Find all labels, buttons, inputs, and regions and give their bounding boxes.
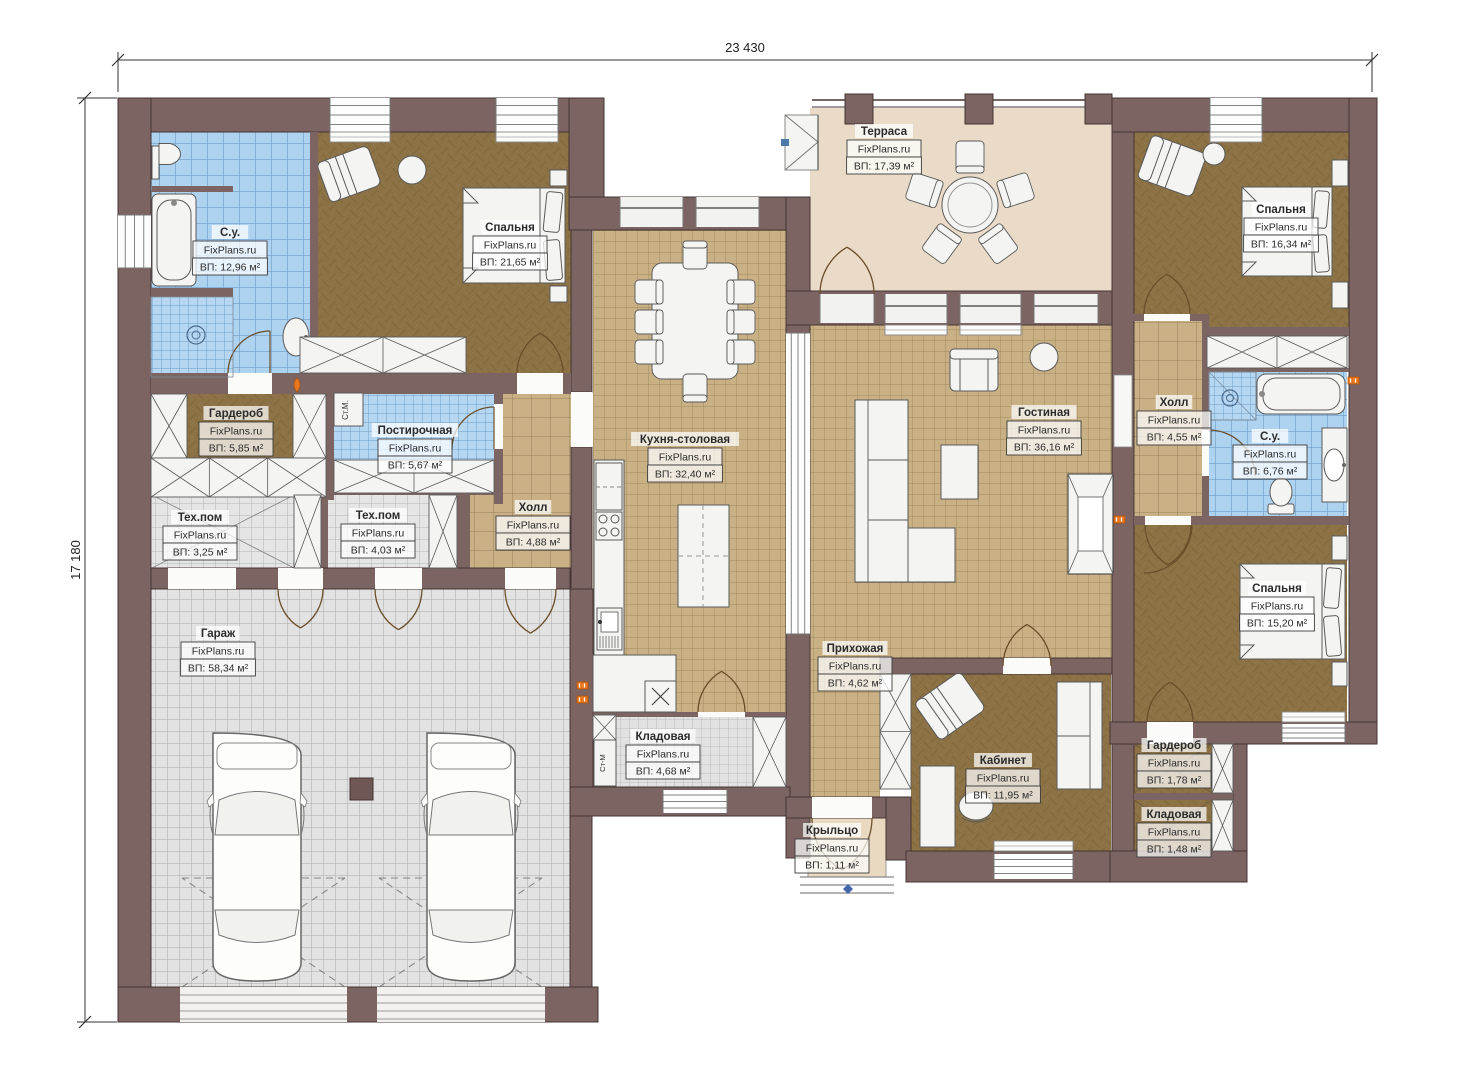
svg-text:FixPlans.ru: FixPlans.ru [1018, 425, 1071, 437]
svg-text:ВП: 12,96 м²: ВП: 12,96 м² [200, 262, 261, 274]
svg-text:FixPlans.ru: FixPlans.ru [507, 520, 560, 532]
svg-text:ВП: 16,34 м²: ВП: 16,34 м² [1251, 239, 1312, 251]
svg-text:ВП: 32,40 м²: ВП: 32,40 м² [655, 469, 716, 481]
svg-text:FixPlans.ru: FixPlans.ru [637, 749, 690, 761]
svg-text:ВП: 17,39 м²: ВП: 17,39 м² [854, 161, 915, 173]
svg-text:Спальня: Спальня [1252, 583, 1302, 595]
svg-text:FixPlans.ru: FixPlans.ru [829, 661, 882, 673]
svg-text:Холл: Холл [1160, 397, 1189, 409]
svg-text:ВП: 4,55 м²: ВП: 4,55 м² [1147, 432, 1202, 444]
svg-text:FixPlans.ru: FixPlans.ru [210, 426, 263, 438]
svg-text:23 430: 23 430 [725, 40, 765, 55]
svg-text:Холл: Холл [519, 502, 548, 514]
svg-text:FixPlans.ru: FixPlans.ru [204, 245, 257, 257]
svg-text:С.у.: С.у. [220, 227, 240, 239]
svg-text:FixPlans.ru: FixPlans.ru [1148, 758, 1201, 770]
svg-text:ВП: 5,85 м²: ВП: 5,85 м² [209, 443, 264, 455]
svg-text:FixPlans.ru: FixPlans.ru [977, 773, 1030, 785]
svg-text:ВП: 1,78 м²: ВП: 1,78 м² [1147, 775, 1202, 787]
svg-text:ВП: 3,25 м²: ВП: 3,25 м² [173, 547, 228, 559]
svg-text:FixPlans.ru: FixPlans.ru [484, 240, 537, 252]
svg-text:Прихожая: Прихожая [827, 643, 884, 655]
svg-text:ВП: 15,20 м²: ВП: 15,20 м² [1247, 618, 1308, 630]
svg-text:Кладовая: Кладовая [1146, 809, 1201, 821]
svg-text:FixPlans.ru: FixPlans.ru [389, 443, 442, 455]
svg-text:Кабинет: Кабинет [980, 755, 1027, 767]
svg-text:FixPlans.ru: FixPlans.ru [659, 452, 712, 464]
svg-text:Гардероб: Гардероб [209, 408, 263, 420]
svg-text:Ст.М.: Ст.М. [341, 400, 350, 420]
svg-text:FixPlans.ru: FixPlans.ru [858, 144, 911, 156]
svg-text:ВП: 36,16 м²: ВП: 36,16 м² [1014, 442, 1075, 454]
svg-text:Спальня: Спальня [485, 222, 535, 234]
svg-text:FixPlans.ru: FixPlans.ru [806, 843, 859, 855]
svg-text:Кладовая: Кладовая [635, 731, 690, 743]
svg-text:ВП: 1,11 м²: ВП: 1,11 м² [805, 860, 859, 872]
svg-text:ВП: 6,76 м²: ВП: 6,76 м² [1243, 466, 1298, 478]
svg-text:Гардероб: Гардероб [1147, 740, 1201, 752]
svg-text:С.у.: С.у. [1260, 431, 1280, 443]
svg-text:Спальня: Спальня [1256, 204, 1306, 216]
svg-text:Тех.пом: Тех.пом [356, 510, 401, 522]
svg-text:Тех.пом: Тех.пом [178, 512, 223, 524]
svg-text:Гостиная: Гостиная [1018, 407, 1070, 419]
svg-text:Терраса: Терраса [861, 126, 908, 138]
svg-text:FixPlans.ru: FixPlans.ru [1244, 449, 1297, 461]
svg-text:ВП: 58,34 м²: ВП: 58,34 м² [188, 663, 249, 675]
svg-text:ВП: 4,62 м²: ВП: 4,62 м² [828, 678, 883, 690]
svg-text:FixPlans.ru: FixPlans.ru [1148, 827, 1201, 839]
svg-text:Кухня-столовая: Кухня-столовая [640, 434, 730, 446]
svg-text:ВП: 1,48 м²: ВП: 1,48 м² [1147, 844, 1202, 856]
svg-text:ВП: 4,68 м²: ВП: 4,68 м² [636, 766, 691, 778]
svg-text:FixPlans.ru: FixPlans.ru [1251, 601, 1304, 613]
svg-text:17 180: 17 180 [68, 540, 83, 580]
svg-text:Гараж: Гараж [201, 628, 236, 640]
svg-text:FixPlans.ru: FixPlans.ru [352, 528, 405, 540]
svg-text:ВП: 5,67 м²: ВП: 5,67 м² [388, 460, 443, 472]
svg-text:Крыльцо: Крыльцо [806, 825, 858, 837]
svg-text:ВП: 4,88 м²: ВП: 4,88 м² [506, 537, 561, 549]
svg-text:ВП: 11,95 м²: ВП: 11,95 м² [973, 790, 1033, 802]
svg-text:FixPlans.ru: FixPlans.ru [192, 646, 245, 658]
svg-text:ВП: 21,65 м²: ВП: 21,65 м² [480, 257, 541, 269]
svg-text:FixPlans.ru: FixPlans.ru [1255, 222, 1308, 234]
svg-text:Ст-М: Ст-М [598, 754, 607, 772]
svg-text:FixPlans.ru: FixPlans.ru [1148, 415, 1201, 427]
svg-text:Постирочная: Постирочная [378, 425, 453, 437]
svg-text:FixPlans.ru: FixPlans.ru [174, 530, 227, 542]
svg-text:ВП: 4,03 м²: ВП: 4,03 м² [351, 545, 406, 557]
